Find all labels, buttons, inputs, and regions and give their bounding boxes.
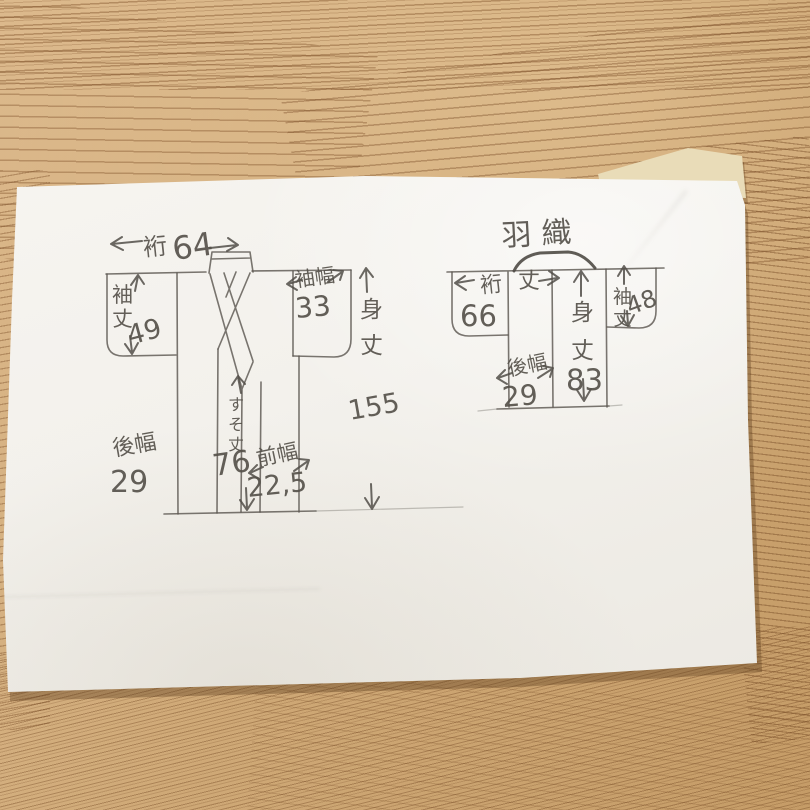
haori-yuki-label: 裄	[479, 272, 504, 299]
haori-yuki-value: 66	[460, 299, 497, 333]
arrow-down-icon	[365, 484, 379, 509]
kimono-mitake-label: 身丈	[360, 297, 383, 359]
arrow-up-icon	[574, 271, 588, 296]
arrow-up-icon	[360, 268, 373, 292]
haori-center-seam	[552, 270, 553, 407]
arrow-right-icon	[539, 271, 559, 285]
kimono-hem-line	[164, 511, 316, 514]
kimono-yuki-value: 64	[170, 225, 216, 268]
kimono-maehaba-value: 22,5	[245, 467, 308, 504]
arrow-right-icon	[210, 238, 238, 251]
kimono-ushirohaba-value: 29	[110, 465, 148, 500]
kimono-ushirohaba-label: 後幅	[111, 430, 159, 462]
haori-shoulder-line	[447, 268, 664, 272]
kimono-sodehaba-label: 袖幅	[293, 263, 336, 292]
haori-mitake-value: 83	[566, 363, 603, 397]
haori-diagram: 羽織 裄 66 丈 身丈 83 袖丈 48 後幅 29	[447, 215, 664, 414]
arrow-left-icon	[111, 237, 142, 250]
arrow-left-icon	[455, 276, 474, 290]
haori-ushirohaba-value: 29	[501, 378, 539, 414]
kimono-mitake-value: 155	[346, 387, 402, 426]
haori-title: 羽織	[501, 215, 583, 254]
kimono-back-collar	[209, 252, 253, 273]
kimono-hem-extension	[316, 507, 463, 511]
kimono-body-left-seam	[177, 273, 178, 514]
kimono-collar-lapels	[210, 272, 253, 389]
kimono-diagram: 裄 64 袖丈 49 袖幅 33 身丈 155 すそ丈 76 後幅 29 前幅 …	[106, 225, 463, 514]
kimono-yuki-label: 裄	[142, 232, 169, 262]
kimono-sodehaba-value: 33	[294, 289, 332, 325]
photo-scene: 裄 64 袖丈 49 袖幅 33 身丈 155 すそ丈 76 後幅 29 前幅 …	[0, 0, 810, 810]
haori-mitake-label: 身丈	[571, 300, 594, 364]
haori-yuki-suffix: 丈	[518, 269, 540, 294]
haori-body-right-seam	[606, 269, 607, 407]
